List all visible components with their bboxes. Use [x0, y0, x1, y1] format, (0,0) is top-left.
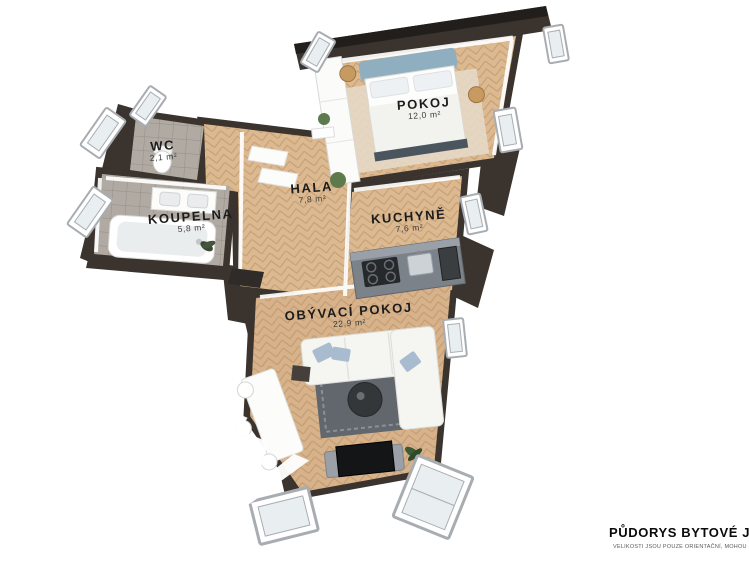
sink-basin [159, 192, 180, 206]
room-label-pokoj: POKOJ 12,0 m² [396, 94, 451, 122]
cooktop [361, 257, 400, 288]
window [443, 318, 467, 358]
room-label-hala: HALA 7,8 m² [290, 179, 334, 206]
window [250, 487, 319, 544]
floor-plan-stage: POKOJ 12,0 m² WC 2,1 m² KOUPELNA 5,8 m² … [0, 0, 749, 562]
tv [336, 441, 395, 477]
plant [318, 113, 330, 125]
floor-plan-render [0, 0, 749, 562]
footer-disclaimer: VELIKOSTI JSOU POUZE ORIENTAČNÍ, MOHOU S… [613, 544, 749, 550]
oven [438, 246, 460, 280]
window [543, 25, 569, 64]
radiator [312, 127, 335, 139]
footer-title: PŮDORYS BYTOVÉ JEDNOTKY [609, 525, 749, 540]
kitchen-sink [407, 253, 434, 276]
sofa-pillow [331, 346, 351, 362]
room-area: 2,1 m² [149, 151, 177, 163]
sink-basin [187, 194, 208, 208]
dining-chair-dark [291, 365, 310, 382]
room-label-wc: WC 2,1 m² [148, 137, 177, 163]
